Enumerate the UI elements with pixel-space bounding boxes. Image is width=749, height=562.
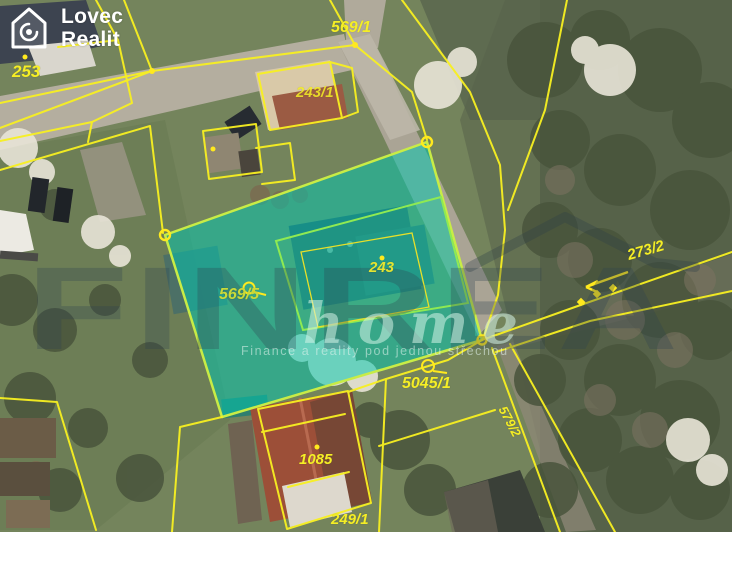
house-spiral-icon — [6, 4, 52, 54]
watermark-roof-icon — [455, 205, 705, 275]
agency-logo-line2: Realit — [61, 29, 123, 52]
agency-logo-text: Lovec Realit — [61, 6, 123, 51]
agency-logo-line1: Lovec — [61, 6, 123, 29]
parcel-label-243: 243 — [369, 260, 394, 275]
parcel-label-5045-1: 5045/1 — [402, 376, 451, 392]
agency-logo: Lovec Realit — [6, 4, 123, 54]
parcel-label-569-1: 569/1 — [331, 20, 371, 36]
listing-map-screenshot: FINREA home Finance a reality pod jednou… — [0, 0, 749, 562]
parcel-label-569-5: 569/5 — [219, 287, 259, 303]
parcel-label-243-1: 243/1 — [296, 85, 334, 100]
parcel-label-253: 253 — [12, 63, 40, 80]
parcel-label-249-1: 249/1 — [331, 512, 369, 527]
parcel-label-1085: 1085 — [299, 452, 332, 467]
watermark-slogan: Finance a reality pod jednou střechou — [241, 344, 509, 358]
